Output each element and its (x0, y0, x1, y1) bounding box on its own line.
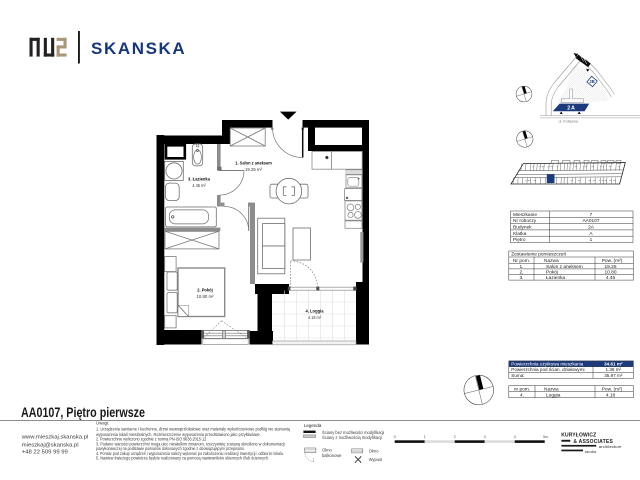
svg-text:Pokój: Pokój (546, 270, 558, 276)
svg-text:Powierzchnia pod ścian. działo: Powierzchnia pod ścian. działowymi (511, 367, 584, 372)
svg-text:Klatka: Klatka (513, 231, 527, 237)
svg-text:35.97 m²: 35.97 m² (604, 373, 623, 378)
svg-text:mieszkaj@skanska.pl: mieszkaj@skanska.pl (22, 442, 79, 448)
svg-text:19.25: 19.25 (604, 264, 616, 270)
svg-text:34.61 m²: 34.61 m² (604, 361, 623, 366)
svg-text:Łazienka: Łazienka (546, 275, 566, 281)
svg-text:1: 1 (590, 237, 593, 243)
svg-text:Salon z aneksem: Salon z aneksem (546, 264, 583, 270)
svg-text:Wypust: Wypust (369, 457, 383, 462)
svg-text:balkonowe: balkonowe (322, 453, 342, 458)
svg-text:+48 22 509 99 99: +48 22 509 99 99 (22, 450, 68, 456)
svg-text:3. Łazienka: 3. Łazienka (188, 177, 210, 183)
svg-text:Pow. (m²): Pow. (m²) (602, 258, 623, 264)
svg-text:4. Loggia: 4. Loggia (306, 309, 324, 315)
svg-text:2.: 2. (519, 270, 523, 276)
svg-text:Piętro: Piętro (513, 237, 526, 243)
svg-text:Nazwa: Nazwa (544, 258, 559, 264)
svg-text:19.25 m²: 19.25 m² (245, 167, 262, 172)
svg-text:0: 0 (394, 434, 397, 439)
svg-text:Zestawienie pomieszczeń: Zestawienie pomieszczeń (511, 252, 566, 258)
svg-text:architecture: architecture (599, 444, 622, 449)
svg-text:Powierzchnia użytkowa mieszkan: Powierzchnia użytkowa mieszkania (511, 361, 583, 366)
svg-text:10.80: 10.80 (604, 270, 616, 276)
svg-text:Mieszkanie: Mieszkanie (513, 212, 537, 218)
svg-text:ul. Kolejowa: ul. Kolejowa (559, 119, 578, 123)
svg-text:1. Salon z aneksem: 1. Salon z aneksem (235, 160, 272, 166)
svg-text:2A: 2A (588, 225, 595, 231)
svg-text:4.18: 4.18 (606, 392, 616, 398)
svg-text:AA0107, Piętro pierwsze: AA0107, Piętro pierwsze (21, 405, 145, 420)
svg-text:4.45 m²: 4.45 m² (192, 183, 206, 188)
svg-text:7: 7 (590, 212, 593, 218)
svg-text:Nr pom.: Nr pom. (513, 258, 530, 264)
svg-text:SKANSKA: SKANSKA (91, 39, 186, 58)
svg-text:Okno: Okno (369, 448, 380, 453)
svg-text:A: A (589, 231, 593, 237)
svg-text:2A: 2A (567, 106, 576, 112)
svg-text:3: 3 (484, 434, 486, 439)
svg-text:studio: studio (585, 449, 597, 454)
svg-text:Ściany z możliwością modyfikac: Ściany z możliwością modyfikacji (322, 435, 382, 440)
svg-text:Legenda: Legenda (304, 423, 322, 428)
svg-text:Suma:: Suma: (511, 373, 524, 378)
svg-text:KURYŁOWICZ: KURYŁOWICZ (561, 432, 596, 438)
svg-text:2: 2 (454, 434, 456, 439)
svg-text:nr pom.: nr pom. (514, 386, 530, 392)
svg-text:Nr roboczy: Nr roboczy (513, 218, 537, 224)
svg-text:4.45: 4.45 (606, 275, 616, 281)
svg-text:Loggia: Loggia (546, 392, 561, 398)
svg-text:www.mieszkaj.skanska.pl: www.mieszkaj.skanska.pl (21, 435, 88, 441)
svg-text:Uwagi:: Uwagi: (96, 420, 109, 425)
svg-text:1.: 1. (519, 264, 523, 270)
svg-text:2B: 2B (589, 79, 594, 84)
svg-text:1.36 m²: 1.36 m² (606, 367, 622, 372)
svg-text:1. Urządzenia sanitarne i kuch: 1. Urządzenia sanitarne i kuchenne, drzw… (96, 427, 290, 432)
svg-text:5m: 5m (543, 434, 548, 439)
svg-text:1: 1 (424, 434, 426, 439)
svg-text:Nazwa: Nazwa (544, 386, 559, 392)
svg-text:4.18 m²: 4.18 m² (308, 315, 321, 320)
svg-text:Pow. (m²): Pow. (m²) (602, 386, 623, 392)
svg-text:4: 4 (514, 434, 517, 439)
svg-text:Budynek: Budynek (513, 225, 532, 231)
svg-text:AA0107: AA0107 (582, 218, 599, 224)
svg-text:5. Nawiew świeżego powietrza b: 5. Nawiew świeżego powietrza będzie real… (96, 456, 269, 461)
svg-text:2. Pokój: 2. Pokój (197, 288, 213, 294)
svg-text:3.: 3. (519, 275, 523, 281)
svg-text:4.: 4. (520, 392, 524, 398)
svg-text:10.80 m²: 10.80 m² (197, 294, 214, 299)
